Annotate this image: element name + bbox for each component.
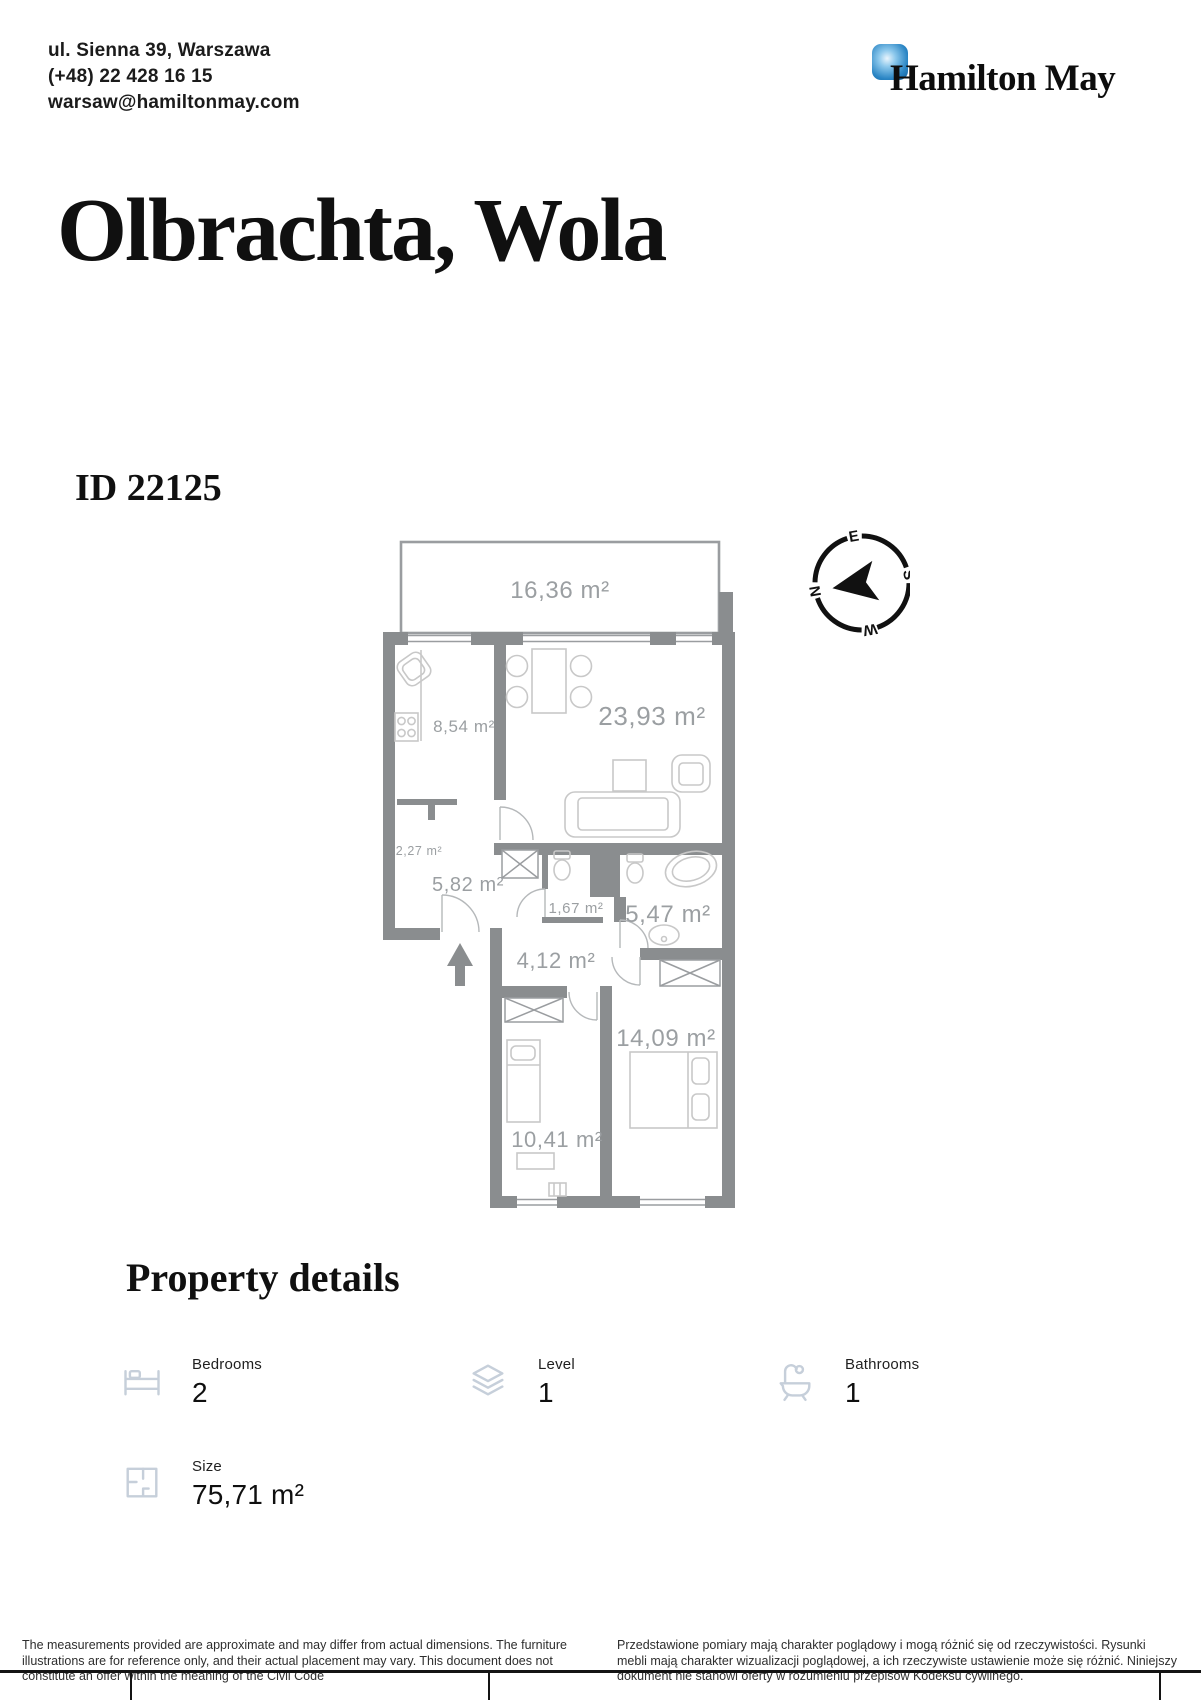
bed-icon <box>120 1358 164 1402</box>
layers-icon <box>466 1358 510 1402</box>
disclaimer-pl: Przedstawione pomiary mają charakter pog… <box>617 1638 1179 1685</box>
room-label-corridor: 4,12 m² <box>517 948 596 973</box>
entrance-arrow-icon <box>447 943 473 986</box>
room-label-kitchen: 8,54 m² <box>433 717 495 736</box>
agency-email: warsaw@hamiltonmay.com <box>48 90 300 116</box>
radiator <box>549 1183 566 1196</box>
wardrobe-bedroom-large <box>660 960 720 986</box>
detail-level: Level 1 <box>466 1356 575 1409</box>
detail-value: 2 <box>192 1377 262 1409</box>
room-label-bedroom-large: 14,09 m² <box>616 1025 716 1052</box>
room-label-closet: 2,27 m² <box>396 844 443 858</box>
detail-size: Size 75,71 m² <box>120 1458 304 1511</box>
floorplan-icon <box>120 1460 164 1504</box>
sofa <box>565 792 680 837</box>
footer-tick <box>1159 1673 1161 1700</box>
detail-bedrooms: Bedrooms 2 <box>120 1356 262 1409</box>
brand-name: Hamilton May <box>890 57 1115 100</box>
detail-value: 75,71 m² <box>192 1479 304 1511</box>
single-bed <box>507 1040 540 1122</box>
tv-table <box>613 760 646 791</box>
detail-value: 1 <box>845 1377 919 1409</box>
armchair <box>672 755 710 792</box>
compass-e: E <box>847 527 860 545</box>
footer-tick <box>130 1673 132 1700</box>
compass-s: S <box>899 568 910 581</box>
disclaimer-en: The measurements provided are approximat… <box>22 1638 588 1685</box>
room-label-bathroom: 5,47 m² <box>625 901 711 928</box>
page-title: Olbrachta, Wola <box>57 183 665 278</box>
compass-w: W <box>861 620 879 639</box>
wardrobe-bedroom-small <box>505 998 563 1022</box>
agency-phone: (+48) 22 428 16 15 <box>48 64 300 90</box>
bathtub-icon <box>773 1358 817 1402</box>
toilet-bath <box>627 854 643 883</box>
detail-label: Level <box>538 1356 575 1373</box>
section-heading: Property details <box>126 1256 400 1300</box>
room-label-living: 23,93 m² <box>598 701 705 731</box>
detail-label: Bedrooms <box>192 1356 262 1373</box>
wardrobe-hall <box>502 850 538 878</box>
sink <box>649 925 679 945</box>
listing-id: ID 22125 <box>75 468 222 508</box>
footer-rule <box>0 1670 1201 1673</box>
compass-n: N <box>806 584 825 598</box>
detail-label: Bathrooms <box>845 1356 919 1373</box>
detail-label: Size <box>192 1458 304 1475</box>
floor-plan: 16,36 m² 8,54 m² 23,93 m² 2,27 m² 5,82 m… <box>350 480 910 1220</box>
stove-icon <box>395 713 418 741</box>
double-bed <box>630 1052 717 1128</box>
desk <box>517 1153 554 1169</box>
agency-contact-block: ul. Sienna 39, Warszawa (+48) 22 428 16 … <box>48 38 300 116</box>
kitchen-sink <box>395 650 434 689</box>
detail-bathrooms: Bathrooms 1 <box>773 1356 919 1409</box>
room-label-wc: 1,67 m² <box>548 900 603 917</box>
footer-tick <box>488 1673 490 1700</box>
room-label-hall: 5,82 m² <box>432 874 504 896</box>
toilet-wc <box>554 851 570 880</box>
compass-icon: N E S W <box>798 519 910 648</box>
dining-table <box>507 649 592 713</box>
detail-value: 1 <box>538 1377 575 1409</box>
agency-address: ul. Sienna 39, Warszawa <box>48 38 300 64</box>
room-label-terrace: 16,36 m² <box>510 577 610 604</box>
room-label-bedroom-small: 10,41 m² <box>511 1127 603 1152</box>
